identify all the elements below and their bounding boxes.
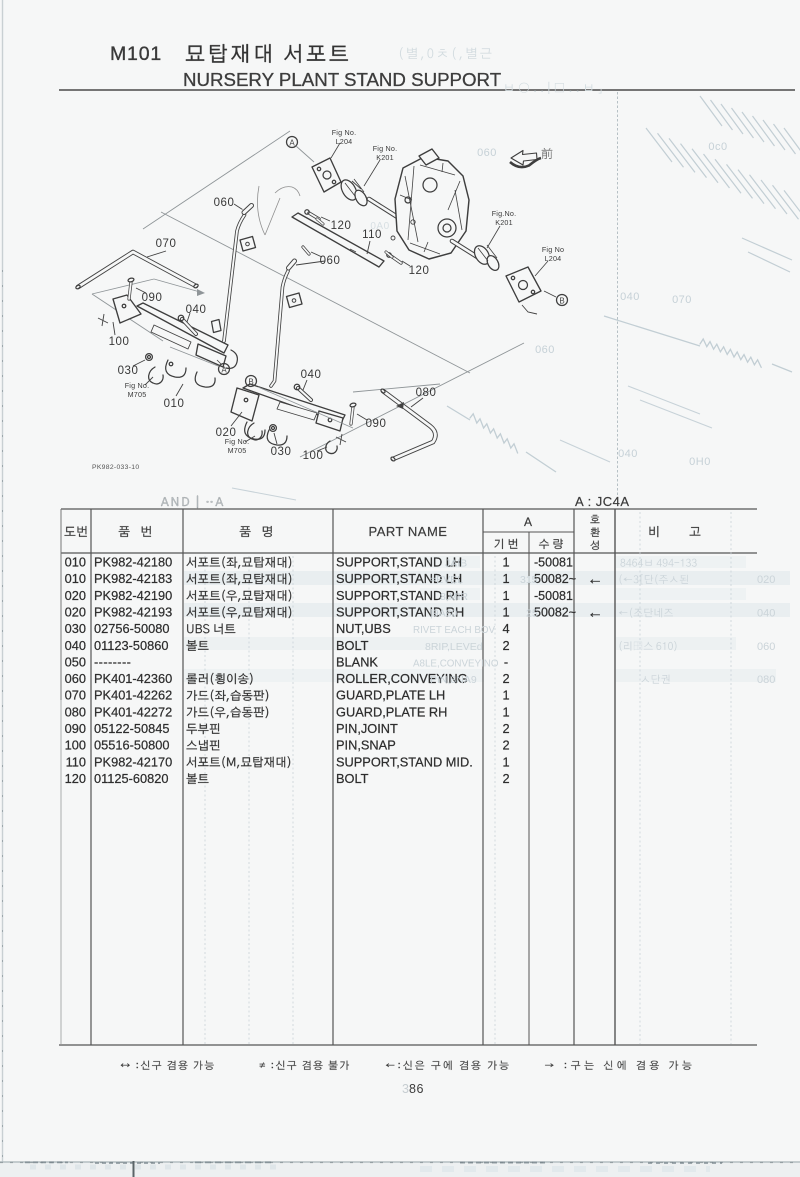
svg-text:Fig No.: Fig No. (332, 128, 357, 137)
svg-text:3: 3 (402, 1082, 409, 1096)
svg-text:1: 1 (502, 571, 509, 586)
svg-text:K201: K201 (376, 153, 394, 162)
svg-text:PK982-42190: PK982-42190 (94, 588, 172, 603)
svg-text:PK982-42180: PK982-42180 (94, 555, 172, 570)
svg-text:-: - (504, 654, 508, 669)
svg-text:NURSERY PLANT STAND SUPPORT: NURSERY PLANT STAND SUPPORT (183, 69, 501, 90)
svg-text:B: B (248, 378, 253, 387)
svg-text:040: 040 (618, 448, 638, 460)
svg-text:110: 110 (66, 754, 86, 769)
svg-text:A: A (221, 366, 227, 375)
svg-text:A: A (524, 515, 532, 529)
svg-text:GUARD,PLATE LH: GUARD,PLATE LH (336, 688, 445, 703)
svg-text:-50081: -50081 (534, 589, 573, 603)
svg-text:060: 060 (757, 641, 775, 653)
svg-text:2: 2 (502, 671, 509, 686)
svg-text:315: 315 (520, 574, 538, 586)
svg-text:RIVET EACH BOV: RIVET EACH BOV (413, 625, 495, 636)
svg-text:BOLT: BOLT (336, 638, 369, 653)
svg-text:2: 2 (502, 721, 509, 736)
svg-text:080: 080 (65, 704, 86, 719)
svg-text:8RIP,LEVEd: 8RIP,LEVEd (425, 641, 483, 653)
svg-text:020: 020 (757, 574, 775, 586)
svg-text:BOLT: BOLT (336, 771, 369, 786)
svg-text:1: 1 (502, 555, 509, 570)
svg-text:BLANK: BLANK (336, 654, 378, 669)
svg-text:0H0: 0H0 (689, 456, 711, 468)
svg-text:030: 030 (118, 365, 139, 377)
svg-text:A: A (289, 139, 295, 148)
svg-text:L204: L204 (336, 137, 353, 146)
svg-text:←: ← (587, 605, 603, 622)
svg-text:070: 070 (672, 294, 692, 306)
svg-text:SUPPORT,STAND LH: SUPPORT,STAND LH (336, 555, 462, 570)
svg-text:070: 070 (65, 688, 86, 703)
svg-text:PIN,8NA9: PIN,8NA9 (430, 674, 477, 686)
svg-text:SUPPORT,STAND MID.: SUPPORT,STAND MID. (336, 754, 473, 769)
svg-text:2: 2 (502, 738, 509, 753)
svg-text:120: 120 (409, 265, 430, 277)
svg-text:1: 1 (502, 605, 509, 620)
svg-text:01125-60820: 01125-60820 (94, 771, 168, 786)
svg-text:PIN,JOINT: PIN,JOINT (336, 721, 398, 736)
svg-text:NUT,UBS: NUT,UBS (336, 621, 391, 636)
svg-text:040: 040 (757, 608, 775, 620)
svg-text:100: 100 (109, 336, 130, 348)
svg-text:86: 86 (409, 1082, 424, 1096)
svg-text:GUARD,PLATE RH: GUARD,PLATE RH (336, 704, 447, 719)
svg-text:060: 060 (320, 255, 341, 267)
svg-text:--------: -------- (94, 654, 131, 669)
svg-text:2: 2 (502, 771, 509, 786)
svg-text:120: 120 (65, 771, 86, 786)
svg-text:PK982-033-10: PK982-033-10 (92, 464, 139, 471)
svg-text:090: 090 (366, 418, 387, 430)
svg-text:PK982-42183: PK982-42183 (94, 571, 172, 586)
svg-text:-50081: -50081 (534, 556, 573, 570)
svg-text:090: 090 (142, 292, 163, 304)
svg-text:0c0: 0c0 (708, 141, 727, 153)
svg-text:4: 4 (502, 621, 509, 636)
svg-text:M101: M101 (110, 43, 162, 65)
svg-text:PK982-42170: PK982-42170 (94, 754, 172, 769)
svg-text:1: 1 (502, 754, 509, 769)
svg-text:05516-50800: 05516-50800 (94, 738, 169, 753)
svg-text:Fig No.: Fig No. (373, 144, 398, 153)
svg-text:B: B (559, 297, 564, 306)
svg-text:100: 100 (65, 738, 86, 753)
svg-text:M705: M705 (228, 446, 247, 455)
svg-text:Fig No: Fig No (542, 245, 564, 254)
svg-text:060: 060 (65, 671, 86, 686)
svg-text:070: 070 (156, 238, 177, 250)
svg-text:080: 080 (757, 674, 775, 686)
svg-text:PK401-42272: PK401-42272 (94, 704, 172, 719)
svg-text:1: 1 (502, 588, 509, 603)
svg-text:PK982-42193: PK982-42193 (94, 605, 172, 620)
svg-text:010: 010 (65, 571, 86, 586)
svg-text:25: 25 (526, 608, 538, 620)
svg-text:←: ← (587, 571, 603, 588)
svg-text:050: 050 (65, 654, 86, 669)
svg-text:060: 060 (535, 344, 555, 356)
svg-text:060: 060 (214, 197, 235, 209)
svg-text:Fig.No.: Fig.No. (492, 209, 517, 218)
svg-text:01123-50860: 01123-50860 (94, 638, 168, 653)
svg-text:030: 030 (271, 446, 292, 458)
svg-text:020: 020 (65, 588, 86, 603)
svg-text:010: 010 (164, 398, 185, 410)
svg-text:040: 040 (301, 369, 322, 381)
svg-text:PART NAME: PART NAME (369, 524, 448, 539)
svg-text:K201: K201 (495, 218, 513, 227)
svg-text:120: 120 (331, 220, 352, 232)
svg-text:100: 100 (303, 450, 324, 462)
svg-text:020: 020 (65, 605, 86, 620)
svg-text:080: 080 (416, 387, 437, 399)
svg-text:A : JC4A: A : JC4A (575, 494, 630, 509)
svg-text:PK401-42360: PK401-42360 (94, 671, 172, 686)
svg-text:010: 010 (65, 555, 86, 570)
svg-text:JAIB: JAIB (445, 558, 467, 570)
svg-text:8,MIR: 8,MIR (440, 591, 468, 603)
svg-text:040: 040 (186, 304, 207, 316)
svg-text:PK401-42262: PK401-42262 (94, 688, 172, 703)
svg-text:1: 1 (502, 688, 509, 703)
svg-text:L204: L204 (545, 254, 562, 263)
svg-text:M705: M705 (128, 390, 147, 399)
svg-text:50082~: 50082~ (534, 572, 576, 586)
svg-text:030: 030 (65, 621, 86, 636)
svg-text:50082~: 50082~ (534, 606, 576, 620)
svg-text:Fig No.: Fig No. (125, 381, 150, 390)
svg-text:PIN,SNAP: PIN,SNAP (336, 738, 396, 753)
svg-text:02756-50080: 02756-50080 (94, 621, 169, 636)
svg-text:|9A80: |9A80 (430, 608, 457, 620)
svg-text:1: 1 (502, 704, 509, 719)
svg-text:0A0: 0A0 (370, 221, 389, 232)
svg-text:=EVEL: =EVEL (430, 574, 463, 586)
svg-text:Fig No.: Fig No. (225, 437, 250, 446)
svg-text:05122-50845: 05122-50845 (94, 721, 169, 736)
svg-text:A8LE,CONVEYINO: A8LE,CONVEYINO (413, 658, 499, 669)
svg-text:2: 2 (502, 638, 509, 653)
svg-text:090: 090 (65, 721, 86, 736)
svg-text:040: 040 (65, 638, 86, 653)
svg-text:040: 040 (620, 291, 640, 303)
svg-text:060: 060 (477, 147, 497, 159)
